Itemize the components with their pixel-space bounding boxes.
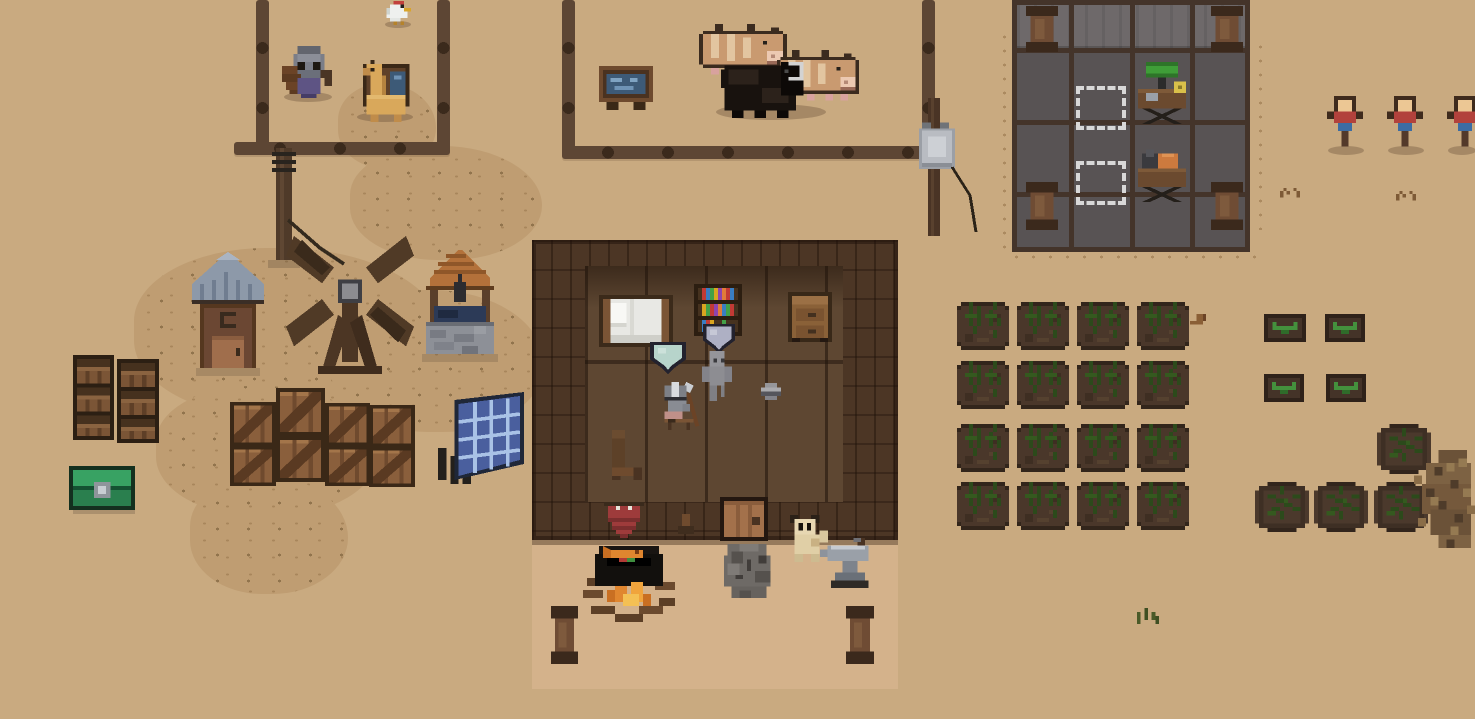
crop-plot-r3c2[interactable] [1017,424,1069,472]
crop-plot-r1c1[interactable] [957,302,1009,350]
workshop-pillar-2 [1211,6,1243,52]
crop-plot-r1c2[interactable] [1017,302,1069,350]
porch-post-left [551,606,578,664]
grass-tuft [1137,608,1159,624]
planter-box-1[interactable] [1264,314,1306,342]
crop-plot-r3c3[interactable] [1077,424,1129,472]
fence-post-transformer[interactable] [916,98,988,240]
outhouse[interactable] [188,252,268,380]
wall-banner[interactable] [604,502,644,542]
crate-5[interactable] [230,446,276,486]
house-door[interactable] [720,497,768,541]
fence-rail-west-pen-right [437,0,450,152]
shield-display-teal[interactable] [650,342,686,374]
barrel-stack-1[interactable] [73,355,114,440]
scene [0,0,1475,719]
anvil[interactable] [820,538,876,588]
workshop-pillar-1 [1026,6,1058,52]
llama-with-crate[interactable] [355,60,417,122]
workbench-orange[interactable] [1130,142,1194,202]
water-well[interactable] [414,250,506,362]
planter-box-3[interactable] [1264,374,1304,402]
training-dummy-1[interactable] [1327,96,1363,154]
workshop-grid-vline-1 [1012,0,1017,252]
black-buffalo[interactable] [717,58,807,118]
workshop-grid-hline-5 [1012,247,1250,252]
workshop-pillar-3 [1026,182,1058,230]
crop-plot-r4c4[interactable] [1137,482,1189,530]
crate-1[interactable] [230,402,276,446]
placement-slot-2[interactable] [1076,161,1126,205]
fence-rail-animal-pen-bottom [562,146,944,159]
wall-lever[interactable] [678,514,694,534]
metal-pot[interactable] [761,383,781,400]
twigs-1 [1280,188,1300,204]
green-chest[interactable] [69,466,135,514]
fence-rail-west-pen-left [256,0,269,152]
campfire-cauldron[interactable] [583,542,679,622]
windmill[interactable] [286,228,414,378]
twigs-2 [1396,191,1416,207]
crop-plot-r2c3[interactable] [1077,361,1129,409]
crate-3[interactable] [325,403,370,446]
crop-plot-r2c2[interactable] [1017,361,1069,409]
workbench-green-lamp[interactable] [1130,62,1194,124]
dirt-pile [1414,450,1475,552]
dresser[interactable] [788,292,832,342]
round-planter-2[interactable] [1255,482,1309,532]
crop-plot-r3c1[interactable] [957,424,1009,472]
shield-display-purple[interactable] [703,324,735,354]
crate-7[interactable] [325,446,370,486]
planter-box-4[interactable] [1326,374,1366,402]
workshop-grid-vline-2 [1069,0,1074,252]
speckles-south-of-workshop [1008,250,1264,268]
speckles-east-of-workshop [1252,40,1270,230]
planter-box-2[interactable] [1325,314,1365,342]
barrel-stack-2[interactable] [117,359,159,443]
crate-2[interactable] [276,388,325,436]
crop-plot-r2c1[interactable] [957,361,1009,409]
chicken[interactable] [383,1,411,25]
npc-knight[interactable] [657,382,701,430]
wooden-chair[interactable] [608,430,646,480]
npc-golem[interactable] [702,351,732,401]
training-dummy-3[interactable] [1447,96,1475,154]
training-dummy-2[interactable] [1387,96,1423,154]
hoe-tool[interactable] [1190,314,1206,328]
bed[interactable] [599,295,673,347]
round-planter-3[interactable] [1314,482,1368,532]
crop-plot-r2c4[interactable] [1137,361,1189,409]
crop-plot-r1c3[interactable] [1077,302,1129,350]
workshop-grid-hline-1 [1012,0,1250,5]
rock-golem[interactable] [716,540,778,602]
workshop-pillar-4 [1211,182,1243,230]
info-sign[interactable] [599,66,653,110]
crop-plot-r4c2[interactable] [1017,482,1069,530]
crate-4[interactable] [369,405,415,447]
crop-plot-r4c3[interactable] [1077,482,1129,530]
hermit-crab[interactable] [282,46,332,98]
crop-plot-r1c4[interactable] [1137,302,1189,350]
crop-plot-r4c1[interactable] [957,482,1009,530]
workshop-grid-vline-3 [1130,0,1135,252]
crate-6[interactable] [276,436,325,482]
crate-8[interactable] [369,447,415,487]
placement-slot-1[interactable] [1076,86,1126,130]
workshop-grid-vline-5 [1245,0,1250,252]
fence-rail-animal-pen-left [562,0,575,158]
dirt-patch-south [190,476,348,594]
solar-panel[interactable] [434,392,524,484]
crop-plot-r3c4[interactable] [1137,424,1189,472]
porch-post-right [846,606,874,664]
workshop-grid-vline-4 [1190,0,1195,252]
